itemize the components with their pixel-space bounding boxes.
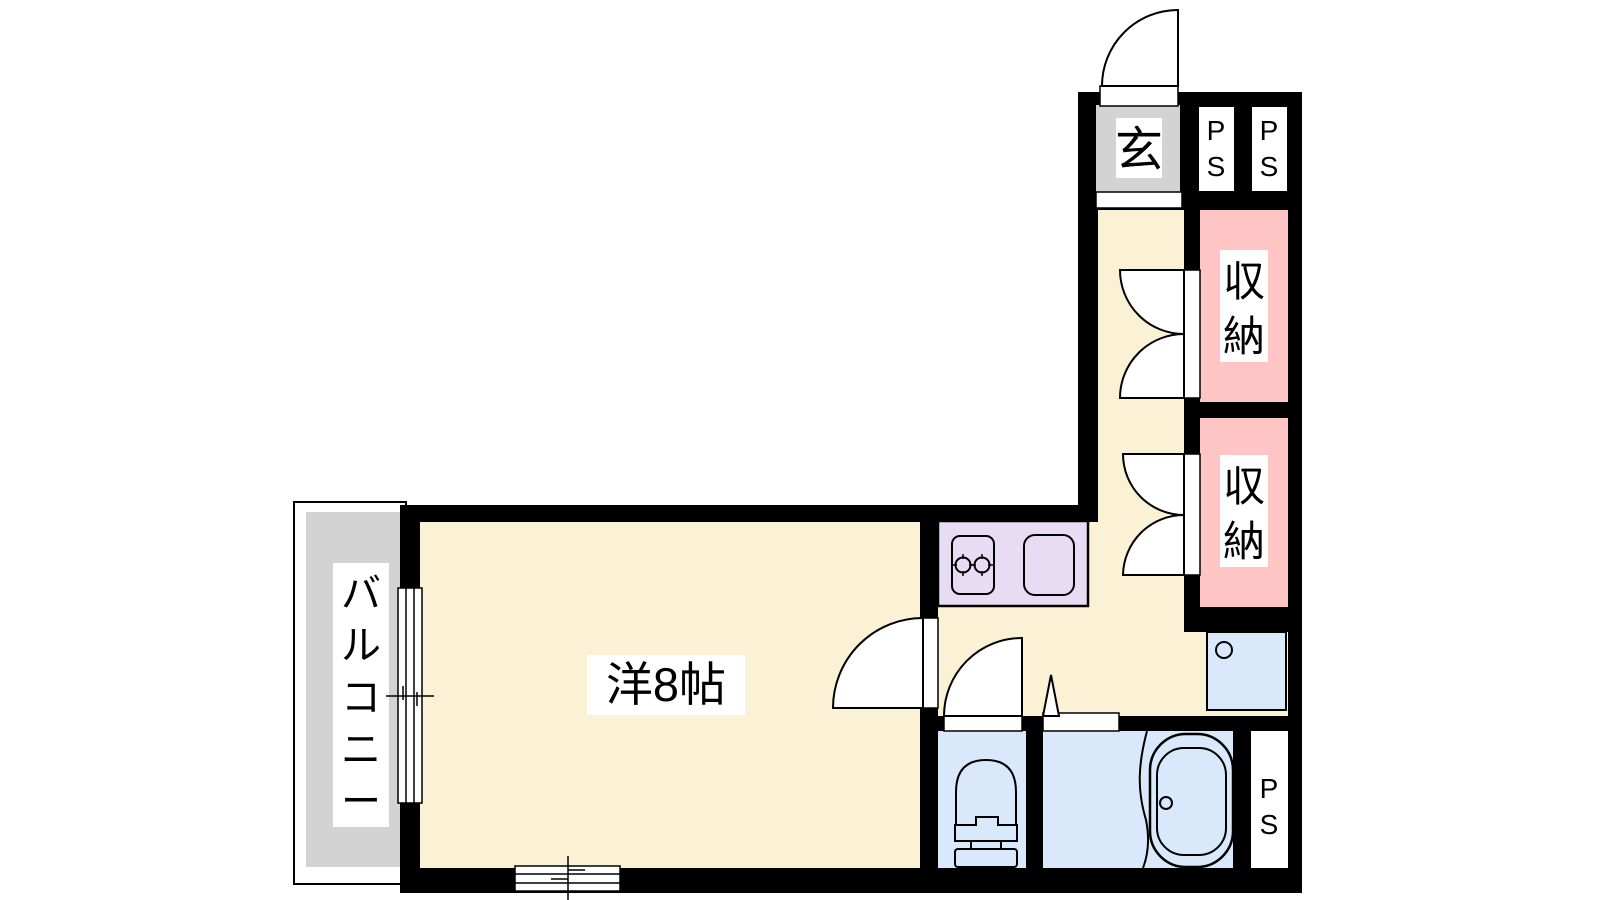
storage-label: 収 (1223, 258, 1265, 305)
balcony-label: ニ (341, 728, 381, 772)
ps-label: P (1260, 115, 1279, 146)
entrance-threshold (1100, 86, 1178, 106)
wall-below-storage (1184, 607, 1302, 632)
floor-plan: バ ル コ ニ ー 玄 P S (0, 0, 1600, 900)
wall-bath-ps (1233, 716, 1251, 893)
ps-label: P (1207, 115, 1226, 146)
ps-label: S (1260, 809, 1279, 840)
balcony-label: ー (341, 780, 381, 824)
wall-wing-east (1288, 92, 1302, 893)
floor-plan-canvas: バ ル コ ニ ー 玄 P S (0, 0, 1600, 900)
balcony-label: ル (341, 624, 381, 668)
washbasin (1207, 632, 1286, 710)
entrance-step (1096, 192, 1182, 208)
balcony-label: バ (341, 572, 381, 616)
storage-door-gap (1184, 454, 1200, 575)
pipe-space-top-left: P S (1199, 107, 1234, 191)
pipe-space-top-right: P S (1252, 107, 1287, 191)
ps-label: S (1260, 151, 1279, 182)
wall-storage-divider (1184, 402, 1302, 418)
entrance: 玄 (1096, 10, 1182, 208)
main-room-label: 洋8帖 (606, 658, 726, 711)
entrance-label: 玄 (1115, 124, 1163, 177)
wall-wing-west (1078, 92, 1098, 522)
bathroom-floor (1043, 731, 1233, 868)
ps-label: P (1260, 773, 1279, 804)
entrance-door-arc (1102, 10, 1178, 86)
toilet-room-floor (938, 731, 1026, 868)
balcony: バ ル コ ニ ー (294, 502, 406, 884)
storage-door-gap (1184, 270, 1200, 398)
wall-north (400, 505, 1096, 522)
storage-label: 納 (1223, 518, 1265, 565)
ps-label: S (1207, 151, 1226, 182)
storage-label: 収 (1223, 463, 1265, 510)
storage-label: 納 (1223, 313, 1265, 360)
balcony-label: コ (341, 676, 381, 720)
wall-toilet-bath (1026, 716, 1043, 893)
kitchen (938, 521, 1088, 606)
pipe-space-bottom: P S (1251, 731, 1288, 868)
